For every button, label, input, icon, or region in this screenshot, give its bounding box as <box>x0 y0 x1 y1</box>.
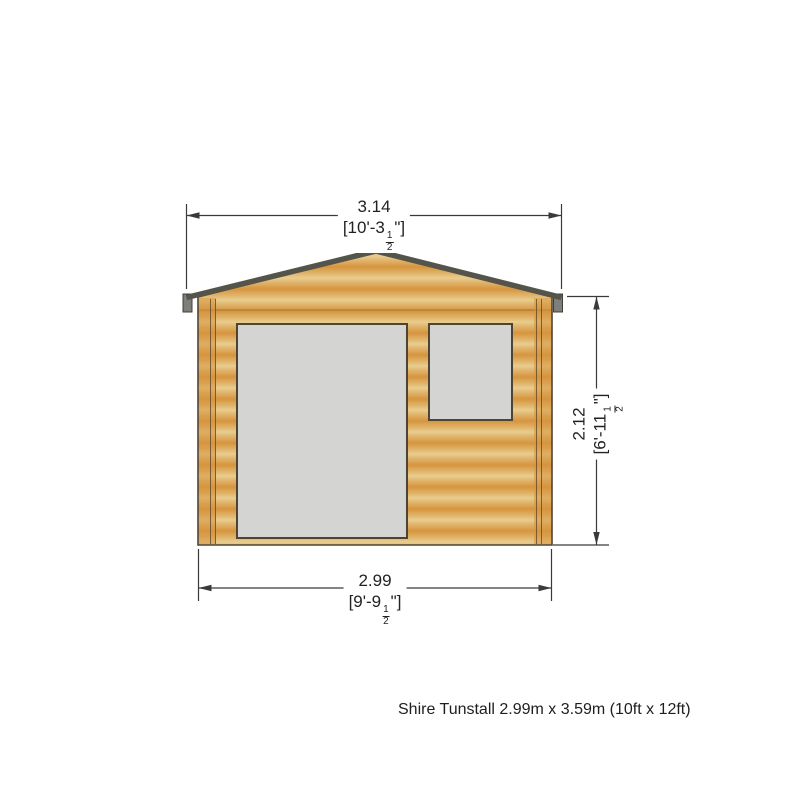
dimension-imperial-bottom: [9'-912"] <box>349 591 402 627</box>
dimension-imperial-right: [6'-1112"] <box>590 393 626 454</box>
elevation-drawing-page: 3.14 [10'-312"] 2.99 [9'-912"] 2.12 [6'-… <box>0 0 800 800</box>
product-caption: Shire Tunstall 2.99m x 3.59m (10ft x 12f… <box>398 700 691 720</box>
dimension-metric-bottom: 2.99 <box>349 570 402 591</box>
fraction: 12 <box>382 605 390 627</box>
shed-elevation-drawing <box>0 0 800 800</box>
top-dim-arrow-left <box>187 212 200 218</box>
dimension-imperial-top: [10'-312"] <box>343 217 405 253</box>
window <box>429 324 512 420</box>
dimension-label-top-width: 3.14 [10'-312"] <box>338 196 410 253</box>
dimension-metric-top: 3.14 <box>343 196 405 217</box>
door <box>237 324 407 538</box>
top-dim-arrow-right <box>549 212 562 218</box>
fraction: 12 <box>386 231 394 253</box>
dimension-metric-right: 2.12 <box>569 393 590 454</box>
side-dim-arrow-top <box>593 297 599 310</box>
left-corner-board <box>199 298 216 544</box>
dimension-label-right-height: 2.12 [6'-1112"] <box>569 388 626 459</box>
bottom-dim-arrow-left <box>199 585 212 591</box>
dimension-label-bottom-width: 2.99 [9'-912"] <box>344 570 407 627</box>
fraction: 12 <box>604 405 626 413</box>
side-dim-arrow-bottom <box>593 532 599 545</box>
bottom-dim-arrow-right <box>539 585 552 591</box>
